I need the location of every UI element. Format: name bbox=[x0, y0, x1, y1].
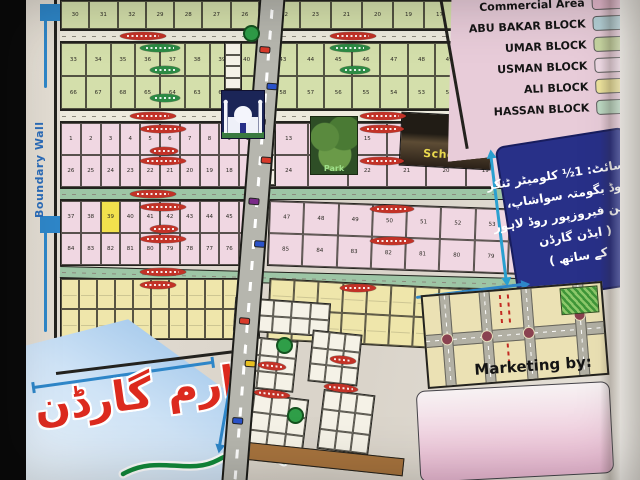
car-icon bbox=[239, 317, 251, 325]
plot-cell: 53 bbox=[408, 76, 436, 109]
street-name-plate bbox=[140, 268, 186, 276]
plot-row: 58575655545352 bbox=[269, 76, 463, 109]
plot-cell: 34 bbox=[86, 43, 111, 76]
street-name-plate bbox=[330, 44, 370, 52]
plot-cell: 80 bbox=[439, 239, 474, 272]
commercial-strip-a bbox=[224, 42, 242, 90]
street-name-plate bbox=[150, 66, 180, 74]
plot-cell: 47 bbox=[380, 43, 408, 76]
car-icon bbox=[266, 83, 278, 91]
plot-cell: 28 bbox=[174, 1, 202, 29]
plot-cell bbox=[364, 314, 390, 345]
plot-cell: 23 bbox=[300, 1, 331, 29]
inset-red-marking bbox=[499, 295, 504, 325]
street-name-plate bbox=[120, 32, 166, 40]
street-name-plate bbox=[140, 203, 186, 211]
street-name-plate bbox=[140, 125, 186, 133]
plot-cell: 37 bbox=[61, 201, 81, 233]
plot-cell: 21 bbox=[331, 1, 362, 29]
plot-cell bbox=[97, 279, 115, 309]
plot-cell bbox=[169, 309, 187, 339]
plot-cell: 81 bbox=[120, 233, 140, 265]
plot-cell: 39 bbox=[101, 201, 121, 233]
street-name-plate bbox=[340, 284, 376, 292]
plot-cell bbox=[388, 315, 414, 346]
plot-cell: 40 bbox=[120, 201, 140, 233]
plot-cell: 65 bbox=[135, 76, 160, 109]
plot-cell: 68 bbox=[111, 76, 136, 109]
street-name-plate bbox=[330, 32, 376, 40]
plot-cell: 29 bbox=[146, 1, 174, 29]
car-icon bbox=[259, 46, 271, 54]
plot-cell: 47 bbox=[269, 201, 304, 234]
street-name-plate bbox=[140, 281, 176, 289]
plot-cell: 38 bbox=[185, 43, 210, 76]
plot-cell bbox=[61, 279, 79, 309]
plot-cell bbox=[309, 364, 327, 382]
plot-row bbox=[225, 55, 241, 67]
plot-cell: 18 bbox=[219, 155, 239, 187]
roundabout-icon bbox=[287, 407, 304, 424]
plot-cell: 56 bbox=[324, 76, 352, 109]
street-name-plate bbox=[150, 94, 180, 102]
plot-cell: 19 bbox=[200, 155, 220, 187]
street-name-plate bbox=[150, 147, 178, 155]
plot-cell: 19 bbox=[393, 1, 424, 29]
plot-row bbox=[225, 43, 241, 55]
park-label: Park bbox=[311, 164, 357, 173]
plot-cell: 82 bbox=[101, 233, 121, 265]
street-name-plate bbox=[140, 235, 186, 243]
plot-row bbox=[225, 78, 241, 90]
plot-cell: 35 bbox=[111, 43, 136, 76]
plot-cell bbox=[291, 302, 311, 319]
plot-cell: 2 bbox=[81, 123, 101, 155]
plot-cell: 23 bbox=[120, 155, 140, 187]
plot-cell bbox=[310, 303, 330, 320]
plot-cell bbox=[390, 285, 416, 316]
street-name-plate bbox=[340, 66, 370, 74]
plot-cell: 66 bbox=[61, 76, 86, 109]
plot-cell bbox=[344, 334, 362, 352]
plot-cell: 48 bbox=[408, 43, 436, 76]
street-name-plate bbox=[360, 112, 406, 120]
street-name-plate bbox=[140, 44, 180, 52]
plot-cell: 52 bbox=[440, 207, 475, 240]
legend-swatch bbox=[593, 35, 638, 52]
plot-cell: 76 bbox=[219, 233, 239, 265]
photo-of-housing-scheme-map: Boundary Wall 30313229282726 22232120191… bbox=[0, 0, 640, 480]
plot-cell bbox=[274, 373, 294, 391]
plot-cell bbox=[310, 347, 328, 365]
plot-cell: 77 bbox=[200, 233, 220, 265]
plot-row: 222321201917 bbox=[269, 1, 455, 29]
plot-cell: 44 bbox=[297, 43, 325, 76]
car-icon bbox=[254, 240, 266, 248]
plot-cell bbox=[79, 279, 97, 309]
plot-cell bbox=[205, 279, 223, 309]
plot-cell: 55 bbox=[352, 76, 380, 109]
plot-cell bbox=[268, 414, 288, 434]
plot-cell bbox=[187, 309, 205, 339]
plot-cell: 84 bbox=[302, 234, 337, 267]
legend-item-label: HASSAN BLOCK bbox=[493, 101, 589, 118]
umar-block-left-top: 30313229282726 bbox=[60, 0, 260, 30]
plot-cell: 8 bbox=[200, 123, 220, 155]
plot-cell: 1 bbox=[61, 123, 81, 155]
plot-cell: 33 bbox=[61, 43, 86, 76]
plot-cell: 3 bbox=[101, 123, 121, 155]
street-name-plate bbox=[360, 125, 404, 133]
plot-cell bbox=[353, 413, 372, 434]
legend-swatch bbox=[596, 98, 640, 115]
marketing-blank-box bbox=[416, 381, 615, 480]
plot-cell: 49 bbox=[337, 203, 372, 236]
plot-cell bbox=[225, 78, 241, 90]
plot-cell: 31 bbox=[89, 1, 117, 29]
plot-cell: 85 bbox=[268, 233, 303, 266]
car-icon bbox=[232, 417, 244, 425]
legend-swatch bbox=[595, 77, 640, 94]
plot-cell: 45 bbox=[219, 201, 239, 233]
plot-cell bbox=[256, 371, 276, 389]
plot-cell bbox=[351, 433, 370, 454]
plot-cell: 63 bbox=[185, 76, 210, 109]
inset-red-marking bbox=[507, 294, 512, 324]
plot-cell bbox=[312, 331, 330, 349]
plot-cell: 83 bbox=[81, 233, 101, 265]
street-name-plate bbox=[370, 205, 414, 213]
plot-row bbox=[225, 66, 241, 78]
legend-item-label: UMAR BLOCK bbox=[505, 38, 587, 55]
roundabout-icon bbox=[243, 25, 260, 42]
plot-cell bbox=[328, 332, 346, 350]
legend-item-label: ALI BLOCK bbox=[524, 80, 589, 96]
plot-cell: 54 bbox=[380, 76, 408, 109]
plot-cell: 83 bbox=[336, 235, 371, 268]
street-name-plate bbox=[130, 190, 176, 198]
plot-cell bbox=[151, 309, 169, 339]
boundary-wall-line bbox=[54, 0, 57, 338]
plot-cell: 30 bbox=[61, 1, 89, 29]
car-icon bbox=[248, 198, 260, 206]
plot-cell: 84 bbox=[61, 233, 81, 265]
plot-cell: 67 bbox=[86, 76, 111, 109]
legend-swatch bbox=[592, 14, 637, 31]
plot-row: 30313229282726 bbox=[61, 1, 259, 29]
legend: Commercial AreaABU BAKAR BLOCKUMAR BLOCK… bbox=[459, 0, 640, 124]
plot-cell bbox=[187, 279, 205, 309]
plot-cell bbox=[324, 365, 342, 383]
plot-cell: 25 bbox=[81, 155, 101, 187]
plot-cell bbox=[355, 394, 374, 415]
plot-cell: 26 bbox=[61, 155, 81, 187]
plot-cell: 20 bbox=[362, 1, 393, 29]
street-name-plate bbox=[140, 157, 186, 165]
plot-cell bbox=[225, 55, 241, 67]
legend-item-label: USMAN BLOCK bbox=[497, 59, 588, 76]
plot-cell: 44 bbox=[200, 201, 220, 233]
plot-cell bbox=[115, 279, 133, 309]
street-name-plate bbox=[360, 157, 404, 165]
plot-cell bbox=[225, 43, 241, 55]
car-icon bbox=[244, 360, 256, 368]
street-name-plate bbox=[370, 237, 414, 245]
plot-cell: 38 bbox=[81, 201, 101, 233]
mosque-photo bbox=[221, 90, 265, 139]
plot-cell: 64 bbox=[160, 76, 185, 109]
road-strip-3 bbox=[60, 188, 520, 200]
plot-cell: 4 bbox=[120, 123, 140, 155]
hassan-block-patch-4 bbox=[317, 389, 376, 455]
plot-cell bbox=[290, 318, 310, 335]
site-info-box: سائٹ: 1½ کلومیٹر ٹنکرروڈ بگومتہ سواشاپ،م… bbox=[494, 127, 640, 304]
legend-swatch bbox=[594, 56, 639, 73]
legend-swatch bbox=[591, 0, 636, 10]
umar-block-right: 4344454647484958575655545352 bbox=[268, 42, 464, 110]
plot-cell bbox=[225, 66, 241, 78]
plot-cell: 57 bbox=[297, 76, 325, 109]
plot-cell bbox=[272, 316, 292, 333]
plot-cell: 48 bbox=[303, 202, 338, 235]
inset-site-plot bbox=[559, 285, 599, 315]
plot-cell: 32 bbox=[118, 1, 146, 29]
legend-item-label: ABU BAKAR BLOCK bbox=[469, 17, 586, 35]
legend-item-label: Commercial Area bbox=[479, 0, 585, 14]
umar-block-right-top: 222321201917 bbox=[268, 0, 456, 30]
car-icon bbox=[260, 156, 272, 164]
boundary-wall-label: Boundary Wall bbox=[33, 66, 46, 218]
boundary-arrow-bottom bbox=[44, 224, 47, 332]
plot-cell: 24 bbox=[101, 155, 121, 187]
photo-black-edge bbox=[0, 0, 26, 480]
plot-cell bbox=[205, 309, 223, 339]
roundabout-icon bbox=[276, 337, 293, 354]
street-name-plate bbox=[150, 225, 178, 233]
plot-cell bbox=[340, 367, 358, 385]
plot-cell bbox=[250, 412, 270, 432]
plot-cell: 27 bbox=[202, 1, 230, 29]
street-name-plate bbox=[130, 112, 176, 120]
mosque-icon bbox=[222, 91, 264, 138]
park-photo: Park bbox=[310, 116, 358, 175]
plot-cell bbox=[273, 300, 293, 317]
